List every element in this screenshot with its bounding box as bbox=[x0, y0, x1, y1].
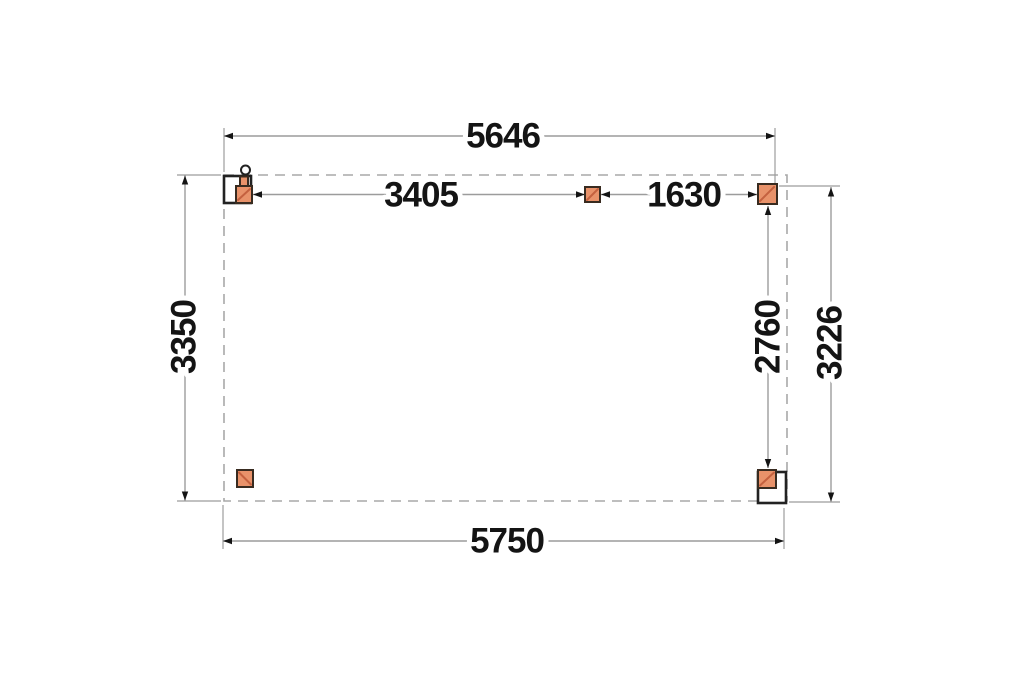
dim-label-span-right: 1630 bbox=[647, 176, 721, 215]
dim-label-left-height: 3350 bbox=[165, 300, 204, 374]
arrowhead bbox=[765, 459, 771, 468]
posts bbox=[236, 177, 777, 489]
arrowhead bbox=[223, 538, 232, 544]
dim-label-post-span: 2760 bbox=[749, 300, 788, 374]
plan-outline-dashed bbox=[224, 175, 787, 501]
dim-label-span-left: 3405 bbox=[384, 176, 458, 215]
arrowhead bbox=[224, 133, 233, 139]
arrowhead bbox=[748, 191, 757, 197]
dim-label-top-width: 5646 bbox=[466, 117, 540, 156]
arrowhead bbox=[253, 191, 262, 197]
arrowhead bbox=[828, 493, 834, 502]
arrowhead bbox=[828, 188, 834, 197]
dimension-lines bbox=[185, 136, 831, 541]
dim-label-bottom-width: 5750 bbox=[470, 522, 544, 561]
post-hatching bbox=[238, 187, 774, 486]
arrowhead bbox=[766, 133, 775, 139]
technical-drawing-canvas: 5646 3405 1630 3350 2760 3226 5750 bbox=[0, 0, 1024, 683]
corner-bases bbox=[224, 166, 786, 504]
arrowhead bbox=[182, 176, 188, 185]
arrowhead bbox=[576, 191, 585, 197]
detail-circle bbox=[241, 166, 250, 175]
arrowhead bbox=[601, 191, 610, 197]
dimension-labels: 5646 3405 1630 3350 2760 3226 5750 bbox=[165, 117, 850, 561]
floor-plan-svg: 5646 3405 1630 3350 2760 3226 5750 bbox=[0, 0, 1024, 683]
dim-label-right-height: 3226 bbox=[811, 306, 850, 380]
arrowhead bbox=[182, 492, 188, 501]
arrowhead bbox=[775, 538, 784, 544]
arrowhead bbox=[765, 206, 771, 215]
extension-lines bbox=[177, 128, 840, 549]
